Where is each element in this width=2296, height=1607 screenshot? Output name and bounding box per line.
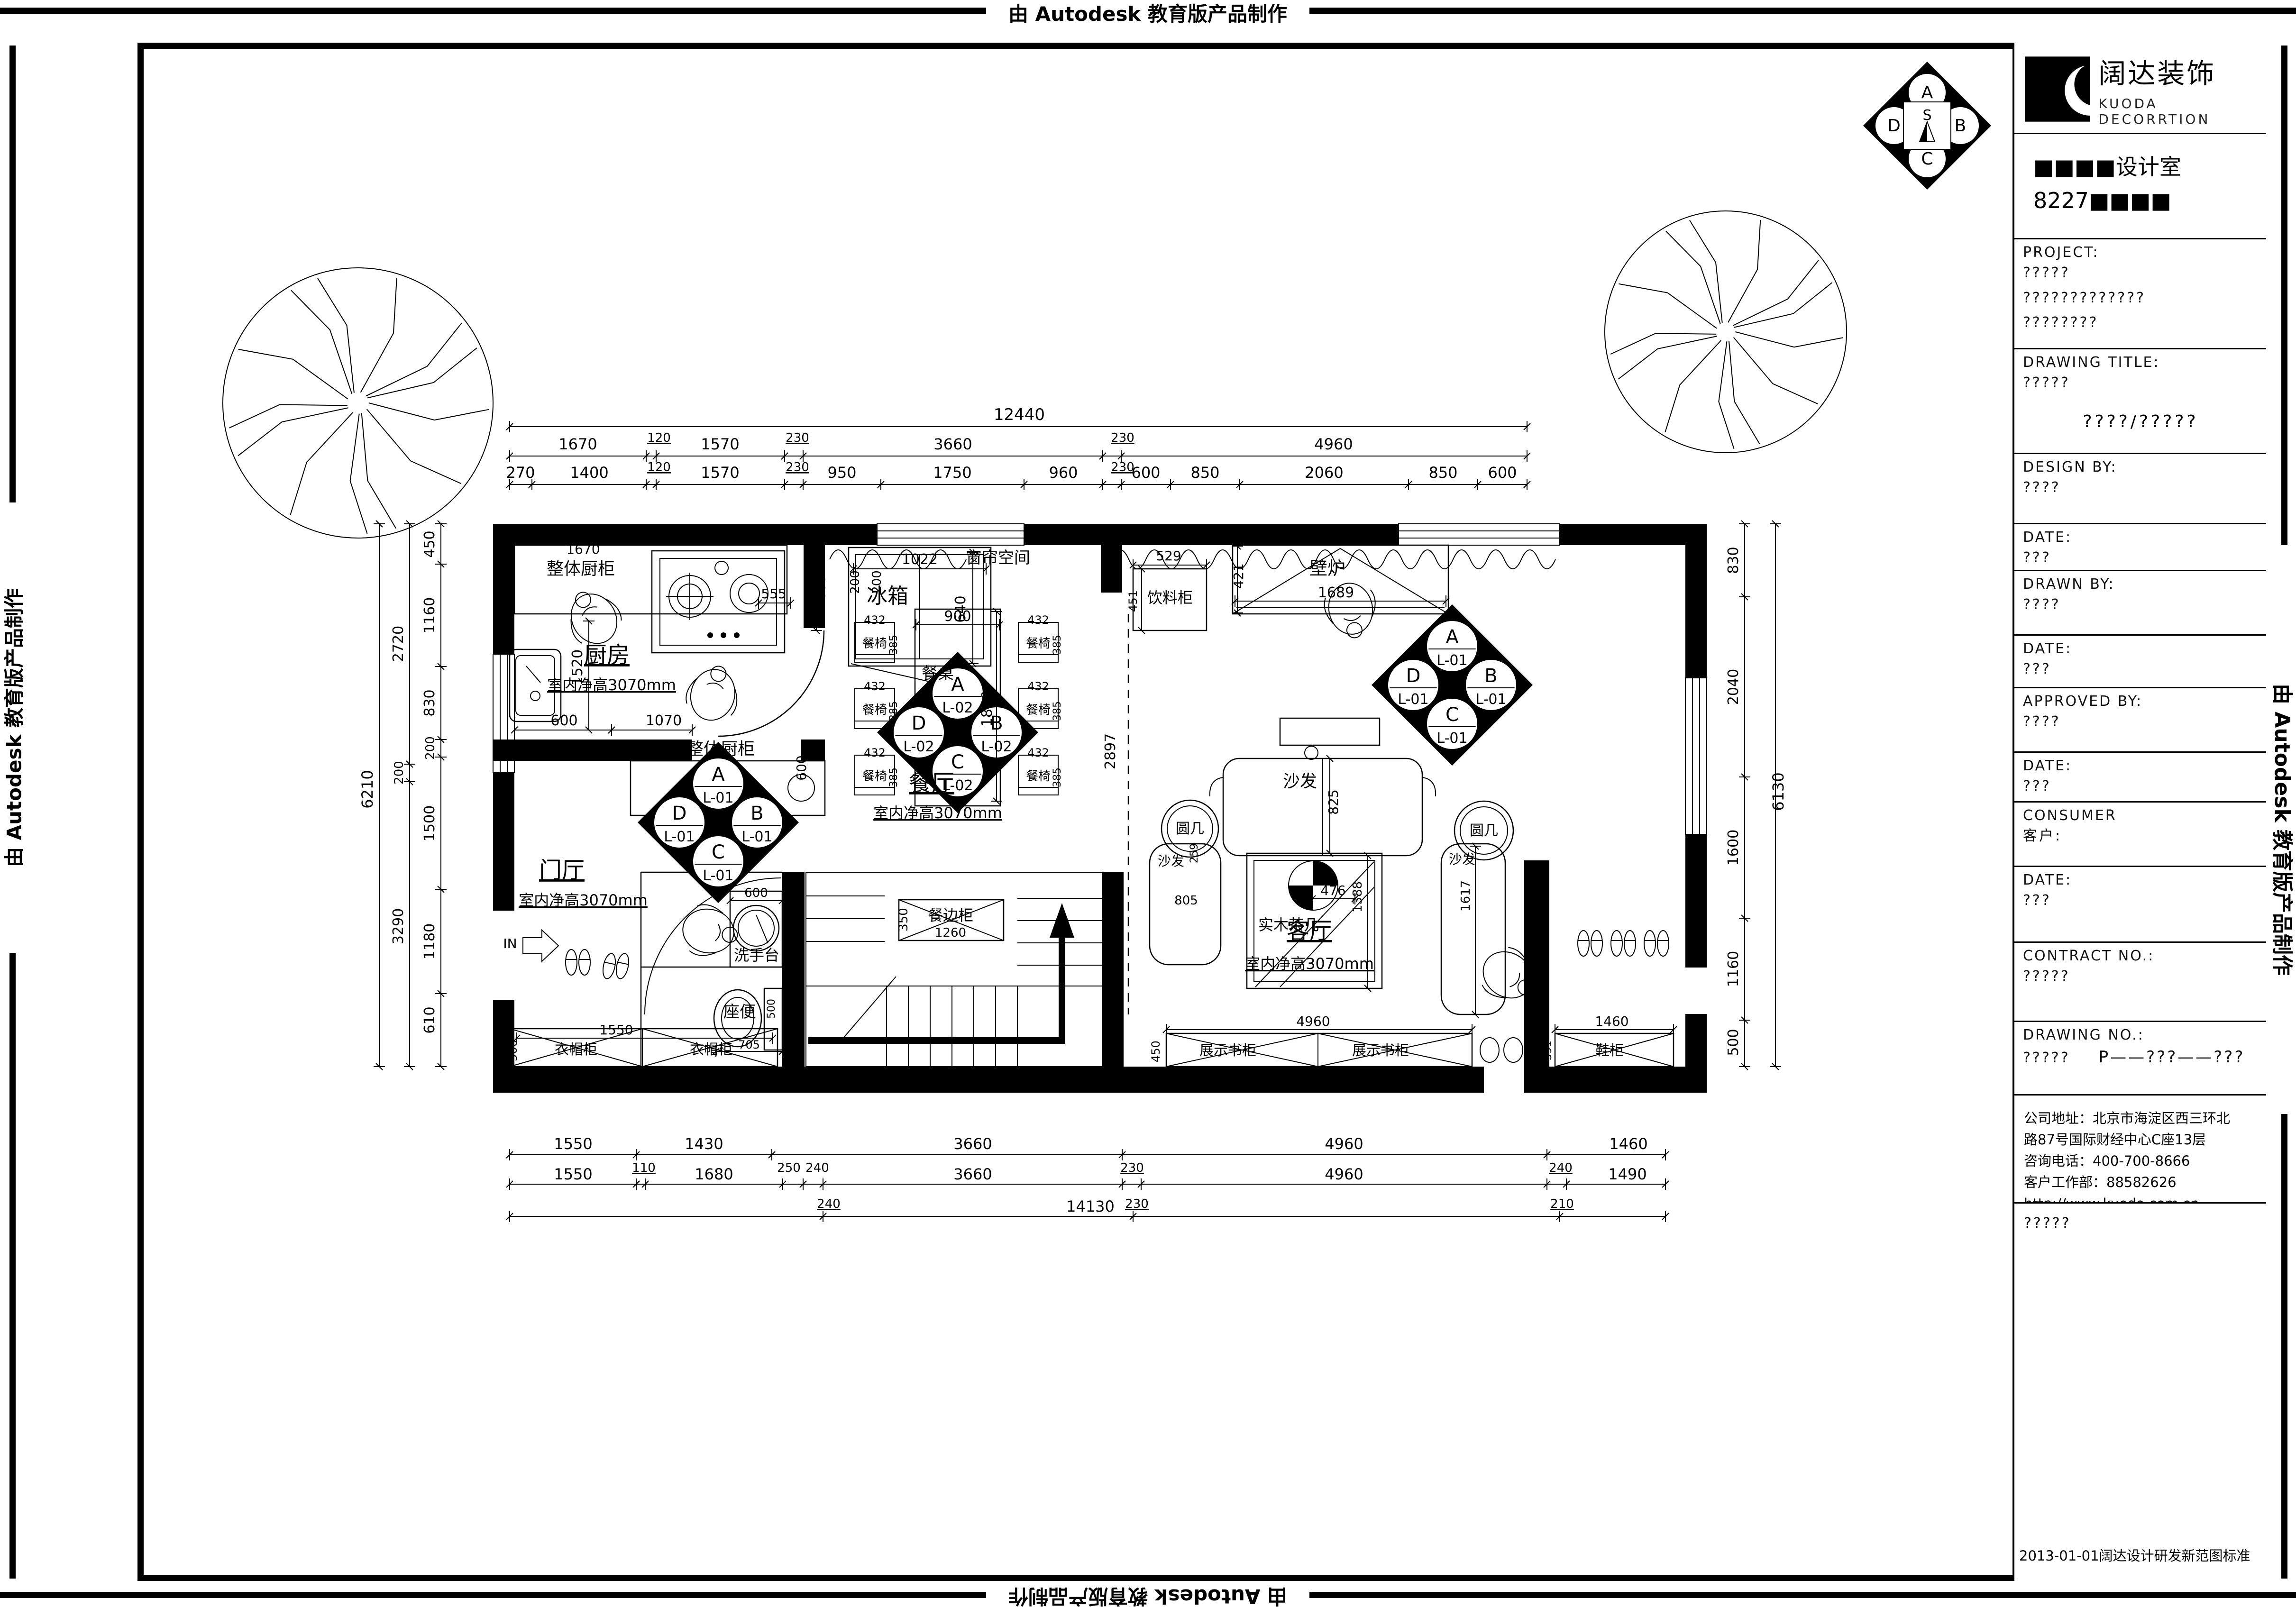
dim-label: 385: [888, 701, 900, 721]
dim-label: 2897: [1102, 733, 1119, 769]
dining-furniture: [855, 569, 1207, 1014]
dim-label: 1750: [933, 464, 971, 482]
dim-label: 451: [1126, 590, 1140, 612]
field-label: APPROVED BY:: [2023, 693, 2259, 710]
dim-label: 391: [1542, 1041, 1554, 1060]
bookcase-label: 展示书柜: [1352, 1042, 1409, 1059]
dim-label: 室内净高3070mm: [547, 676, 676, 694]
bottom-border-bar-left: [0, 1592, 986, 1598]
field-value: 客户:: [2023, 824, 2259, 849]
dim-label: 3290: [390, 908, 407, 944]
brand-name-en: KUODA DECORRTION: [2098, 96, 2261, 127]
titleblock-footer: 2013-01-01阔达设计研发新范图标准: [2014, 1545, 2266, 1573]
company-info-line: 客户工作部：88582626: [2024, 1172, 2259, 1193]
stairs: [806, 872, 1102, 1067]
dim-label: 1550: [554, 1165, 592, 1183]
dim-label: 230: [786, 460, 809, 475]
dim-label: 500: [766, 999, 778, 1019]
dim-label: 230: [1120, 1161, 1144, 1175]
dim-label: 1160: [421, 597, 438, 633]
drawing-no-code: P——???——???: [2099, 1043, 2245, 1072]
dim-label: 4960: [1314, 435, 1353, 453]
autodesk-note-top: 由 Autodesk 教育版产品制作: [1008, 0, 1287, 27]
dim-label: 960: [1049, 464, 1078, 482]
dim-label: 240: [1549, 1161, 1573, 1175]
titleblock-row-date: DATE:???: [2014, 753, 2266, 803]
dining-table-label: 餐桌: [922, 664, 954, 683]
svg-text:L-01: L-01: [1475, 691, 1506, 708]
dim-label: 432: [864, 680, 886, 693]
coat-cabinet-label: 衣帽柜: [690, 1041, 732, 1058]
field-label: DESIGN BY:: [2023, 459, 2259, 475]
field-value: ??????????????????????????: [2023, 261, 2259, 336]
living-furniture: [1150, 545, 1674, 1067]
field-value: ????: [2023, 710, 2259, 735]
dim-label: 450: [1149, 1041, 1162, 1062]
dim-label: 259: [1189, 843, 1200, 863]
svg-text:C: C: [712, 841, 725, 863]
dim-label: 1600: [1725, 830, 1742, 866]
svg-text:A: A: [712, 764, 725, 785]
field-value: ????: [2023, 593, 2259, 618]
field-value: ???: [2023, 774, 2259, 799]
svg-text:B: B: [1484, 665, 1497, 687]
dim-label: 餐椅: [862, 703, 887, 717]
svg-text:C: C: [1445, 704, 1459, 726]
dim-label: 200: [392, 761, 406, 785]
dim-label: 1550: [554, 1135, 592, 1153]
dim-label: 餐椅: [862, 637, 887, 651]
svg-text:L-01: L-01: [703, 790, 733, 806]
elevation-markers: AL-01BL-01CL-01DL-01AL-02BL-02CL-02DL-02…: [638, 604, 1533, 903]
dim-total-top: 12440: [994, 405, 1045, 424]
dim-label: 200: [870, 570, 884, 594]
svg-text:L-02: L-02: [903, 739, 934, 755]
trees: [223, 211, 1847, 538]
north-compass: ABCDS: [1863, 62, 1991, 190]
dim-label: 450: [421, 530, 438, 557]
autodesk-note-right: 由 Autodesk 教育版产品制作: [2269, 684, 2296, 976]
dim-label: 1388: [1351, 881, 1365, 913]
dim-label: 1550: [599, 1022, 633, 1038]
field-value: ???: [2023, 657, 2259, 682]
field-label: DATE:: [2023, 758, 2259, 774]
titleblock-row-drawingno: DRAWING NO.:?????P——???——???: [2014, 1022, 2266, 1096]
dim-label: 2060: [1305, 464, 1343, 482]
dim-label: 1180: [421, 923, 438, 959]
dim-label: 整体厨柜: [686, 740, 755, 759]
dim-label: 3660: [953, 1165, 992, 1183]
titleblock-row-date: DATE:???: [2014, 524, 2266, 571]
dim-label: 230: [1111, 431, 1134, 445]
dim-label: 1500: [421, 805, 438, 841]
field-label: PROJECT:: [2023, 244, 2259, 261]
dim-label: 240: [805, 1161, 829, 1175]
dim-label: 385: [1052, 767, 1063, 787]
titleblock-studio-section: ■■■■设计室 8227■■■■: [2014, 134, 2266, 239]
titleblock-row-drawingtitle: DRAWING TITLE:?????????/?????: [2014, 349, 2266, 454]
svg-text:L-01: L-01: [664, 829, 695, 845]
bookcase-label: 展示书柜: [1199, 1042, 1256, 1059]
room-label-dining: 餐厅: [909, 770, 954, 796]
dim-label: 240: [817, 1197, 841, 1211]
company-info-line: 公司地址：北京市海淀区西三环北: [2024, 1108, 2259, 1129]
field-value: ????: [2023, 475, 2259, 501]
dim-total-left: 6210: [358, 770, 376, 808]
dim-label: 250: [777, 1161, 801, 1175]
dim-label: 1570: [701, 435, 739, 453]
washbasin-label: 洗手台: [734, 946, 779, 964]
dim-label: 600: [550, 712, 577, 729]
titleblock-logo-section: 阔达装饰 KUODA DECORRTION: [2014, 43, 2266, 134]
dim-label: 室内净高3070mm: [873, 804, 1002, 822]
svg-text:C: C: [1921, 149, 1933, 169]
company-info-line: http://www.kuoda.com.cn: [2024, 1193, 2259, 1204]
dim-label: 200: [423, 736, 438, 760]
dim-label: 432: [1027, 680, 1049, 693]
dim-label: 室内净高3070mm: [1245, 955, 1374, 973]
field-value: ???: [2023, 888, 2259, 913]
svg-text:L-01: L-01: [1436, 730, 1467, 747]
bottom-border-bar-right: [1309, 1592, 2296, 1598]
dim-label: 1570: [701, 464, 739, 482]
dim-label: 3660: [953, 1135, 992, 1153]
curtain-wave: [830, 550, 1555, 569]
brand-name-zh: 阔达装饰: [2098, 51, 2261, 91]
dim-label: 230: [1111, 460, 1134, 475]
titleblock-row-project: PROJECT:??????????????????????????: [2014, 239, 2266, 349]
top-border-bar-right: [1309, 8, 2296, 14]
titleblock-row-drawnby: DRAWN BY:????: [2014, 571, 2266, 636]
dim-label: 1490: [1608, 1165, 1647, 1183]
titleblock-row-date: DATE:???: [2014, 867, 2266, 943]
dim-label: 350: [896, 908, 911, 931]
svg-text:D: D: [1887, 116, 1901, 136]
dim-label: 1022: [902, 551, 938, 568]
dim-label: 120: [647, 431, 671, 445]
dim-label: 4960: [1325, 1135, 1363, 1153]
titleblock-row-date: DATE:???: [2014, 636, 2266, 688]
dim-label: 600: [744, 886, 768, 900]
coat-cabinet-label: 衣帽柜: [555, 1041, 597, 1058]
floor-plan: AL-01BL-01CL-01DL-01AL-02BL-02CL-02DL-02…: [142, 46, 2012, 1579]
field-label: CONSUMER: [2023, 807, 2259, 824]
dim-label: 200: [848, 570, 862, 594]
note-text: ?????: [2014, 1204, 2266, 1232]
dim-label: 餐椅: [1026, 769, 1051, 784]
field-label: DATE:: [2023, 640, 2259, 657]
svg-text:L-01: L-01: [703, 867, 733, 884]
field-value: ???: [2023, 546, 2259, 571]
dim-label: 432: [1027, 746, 1049, 759]
studio-line2: 8227■■■■: [2033, 184, 2266, 218]
dim-label: 1680: [695, 1165, 733, 1183]
dim-label: 385: [1052, 701, 1063, 721]
dim-label: 600: [1488, 464, 1517, 482]
dim-label: 1460: [1609, 1135, 1647, 1153]
dim-label: 120: [647, 460, 671, 475]
field-label: DRAWING NO.:: [2023, 1027, 2259, 1043]
dim-label: 2720: [390, 626, 407, 662]
svg-text:A: A: [1921, 83, 1933, 102]
studio-line1: ■■■■设计室: [2033, 150, 2266, 184]
dim-label: 1800: [979, 691, 996, 727]
dim-label: 230: [1125, 1197, 1149, 1211]
svg-text:D: D: [672, 803, 687, 824]
dim-label: 1070: [646, 712, 682, 729]
room-label-kitchen: 厨房: [584, 642, 630, 668]
dim-label: 830: [421, 689, 438, 716]
dim-label: 705: [738, 1038, 760, 1051]
dim-label: 432: [1027, 613, 1049, 627]
svg-text:D: D: [1406, 665, 1421, 687]
dim-label: 110: [632, 1161, 656, 1175]
dim-label: 整体厨柜: [547, 559, 615, 579]
dim-label: 421: [1231, 563, 1246, 588]
bathroom: [641, 872, 782, 1067]
autodesk-note-left: 由 Autodesk 教育版产品制作: [0, 588, 27, 867]
dim-label: 圆几: [1470, 822, 1498, 839]
dim-label: 3660: [933, 435, 972, 453]
dim-label: 432: [864, 746, 886, 759]
dim-label: 850: [1428, 464, 1457, 482]
shoe-cabinet-label: 鞋柜: [1595, 1042, 1624, 1059]
dim-label: 室内净高3070mm: [519, 891, 648, 909]
field-value: ?????: [2023, 964, 2259, 989]
field-label: DATE:: [2023, 529, 2259, 546]
room-label-living: 客厅: [1287, 918, 1332, 944]
dim-label: 825: [1326, 789, 1341, 814]
dim-label: 270: [506, 464, 535, 482]
right-border-bar-top: [2281, 46, 2287, 545]
dim-label: 2040: [1725, 669, 1742, 705]
svg-text:B: B: [750, 803, 763, 824]
svg-text:D: D: [912, 712, 926, 734]
dim-label: 805: [1174, 894, 1198, 908]
dim-label: 500: [506, 1040, 520, 1061]
dim-label: 385: [888, 767, 900, 787]
drink-cabinet-label: 饮料柜: [1147, 589, 1193, 607]
titleblock-company-section: 公司地址：北京市海淀区西三环北路87号国际财经中心C座13层咨询电话：400-7…: [2014, 1096, 2266, 1204]
curtain-label: 窗帘空间: [966, 548, 1030, 567]
top-border-bar-left: [0, 8, 986, 14]
field-label: CONTRACT NO.:: [2023, 948, 2259, 964]
dim-total-right: 6130: [1769, 772, 1787, 811]
field-value: ?????: [2023, 371, 2259, 396]
dim-label: 600: [1131, 464, 1160, 482]
dim-label: 沙发: [1449, 851, 1475, 867]
dim-label: 1689: [1318, 584, 1354, 601]
company-info-line: 路87号国际财经中心C座13层: [2024, 1129, 2259, 1150]
dim-label: 餐椅: [1026, 637, 1051, 651]
dim-label: 950: [827, 464, 856, 482]
field-label: DRAWING TITLE:: [2023, 354, 2259, 371]
dim-label: 432: [864, 613, 886, 627]
dim-label: 385: [1052, 635, 1063, 655]
dim-label: 529: [1156, 548, 1181, 564]
dim-label: 600: [794, 755, 809, 780]
dim-label: 圆几: [1176, 821, 1204, 837]
left-border-bar-bottom: [9, 953, 16, 1579]
fireplace-label: 壁炉: [1309, 558, 1345, 579]
cad-drawing-page: { "edges": { "autodesk_note": "由 Autodes…: [0, 0, 2296, 1607]
titleblock: 阔达装饰 KUODA DECORRTION ■■■■设计室 8227■■■■ P…: [2012, 43, 2266, 1581]
titleblock-row-contractno: CONTRACT NO.:?????: [2014, 943, 2266, 1022]
dim-label: 1617: [1459, 880, 1473, 912]
kuoda-logo-icon: [2025, 54, 2090, 125]
dim-label: 1670: [558, 435, 597, 453]
toilet-label: 座便: [723, 1003, 756, 1022]
dim-label: 1670: [566, 541, 600, 557]
dim-label: 4960: [1325, 1165, 1363, 1183]
entry-fixtures: [510, 930, 1669, 1067]
sofa-label: 沙发: [1283, 772, 1317, 791]
company-info-line: 咨询电话：400-700-8666: [2024, 1150, 2259, 1172]
dim-label: 1460: [1595, 1014, 1628, 1029]
field-label: DRAWN BY:: [2023, 576, 2259, 593]
titleblock-row-designby: DESIGN BY:????: [2014, 454, 2266, 524]
svg-text:L-02: L-02: [942, 700, 973, 716]
svg-text:L-01: L-01: [1436, 652, 1467, 669]
titleblock-row-approvedby: APPROVED BY:????: [2014, 688, 2266, 753]
svg-text:A: A: [1445, 626, 1459, 648]
titleblock-note-section: ????? 2013-01-01阔达设计研发新范图标准: [2014, 1204, 2266, 1573]
autodesk-note-bottom: 由 Autodesk 教育版产品制作: [1008, 1583, 1287, 1607]
room-label-entry: 门厅: [539, 857, 585, 884]
titleblock-row-consumer: CONSUMER客户:: [2014, 803, 2266, 867]
dim-label: 500: [1725, 1029, 1742, 1056]
dim-label: 900: [944, 608, 971, 625]
dim-label: 610: [421, 1006, 438, 1033]
field-value: ?????P——???——???: [2023, 1043, 2259, 1072]
dim-label: 4960: [1296, 1014, 1330, 1029]
svg-text:L-01: L-01: [1398, 691, 1428, 708]
field-label: DATE:: [2023, 872, 2259, 888]
dim-label: 555: [761, 586, 786, 602]
sideboard-label: 餐边柜: [928, 906, 973, 924]
svg-text:B: B: [1955, 116, 1967, 136]
dim-label: 1160: [1725, 951, 1742, 987]
left-border-bar-top: [9, 46, 16, 502]
dim-label: 830: [1725, 547, 1742, 574]
dim-label: 230: [786, 431, 809, 445]
dim-label: 210: [1550, 1197, 1574, 1211]
dim-label: 476: [1320, 883, 1345, 898]
dim-label: 385: [888, 635, 900, 655]
dim-label: 餐椅: [1026, 703, 1051, 717]
dim-total-bottom: 14130: [1066, 1197, 1115, 1215]
entry-in-label: IN: [503, 936, 517, 951]
dim-label: 沙发: [1158, 853, 1184, 869]
dim-label: 餐椅: [862, 769, 887, 784]
dim-label: 1400: [570, 464, 608, 482]
right-border-bar-bottom: [2281, 1114, 2287, 1579]
dim-label: 850: [1190, 464, 1219, 482]
dim-label: 1430: [685, 1135, 723, 1153]
drawing-title-value: ????/?????: [2023, 412, 2259, 431]
svg-text:L-01: L-01: [741, 829, 772, 845]
dim-label: 600: [813, 575, 828, 600]
dim-label: 1260: [935, 926, 966, 940]
